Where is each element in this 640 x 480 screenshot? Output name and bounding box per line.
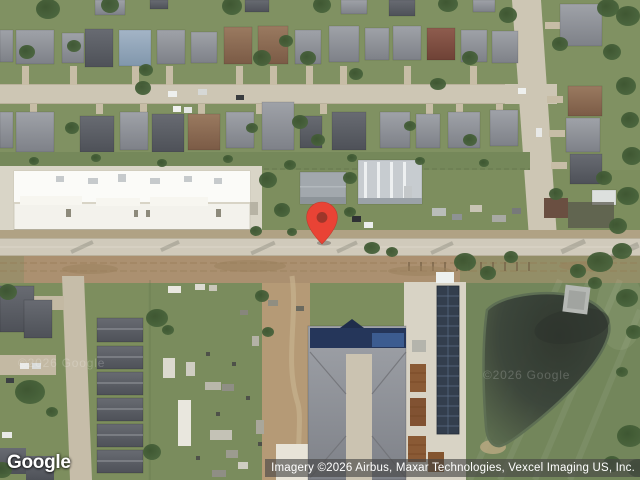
google-logo[interactable]: Google — [7, 452, 71, 474]
street-horizontal — [0, 84, 528, 104]
attribution-bar: Imagery ©2026 Airbus, Maxar Technologies… — [265, 459, 640, 477]
white-commercial-building — [0, 166, 262, 236]
satellite-imagery — [0, 0, 640, 480]
imagery-watermark: ©2026 Google — [18, 356, 105, 370]
yard-clutter — [568, 202, 614, 228]
imagery-watermark: ©2026 Google — [483, 368, 570, 382]
attribution-text: Imagery ©2026 Airbus, Maxar Technologies… — [271, 462, 635, 474]
solar-array — [436, 272, 459, 434]
map-canvas[interactable]: ©2026 Google ©2026 Google Google Imagery… — [0, 0, 640, 480]
